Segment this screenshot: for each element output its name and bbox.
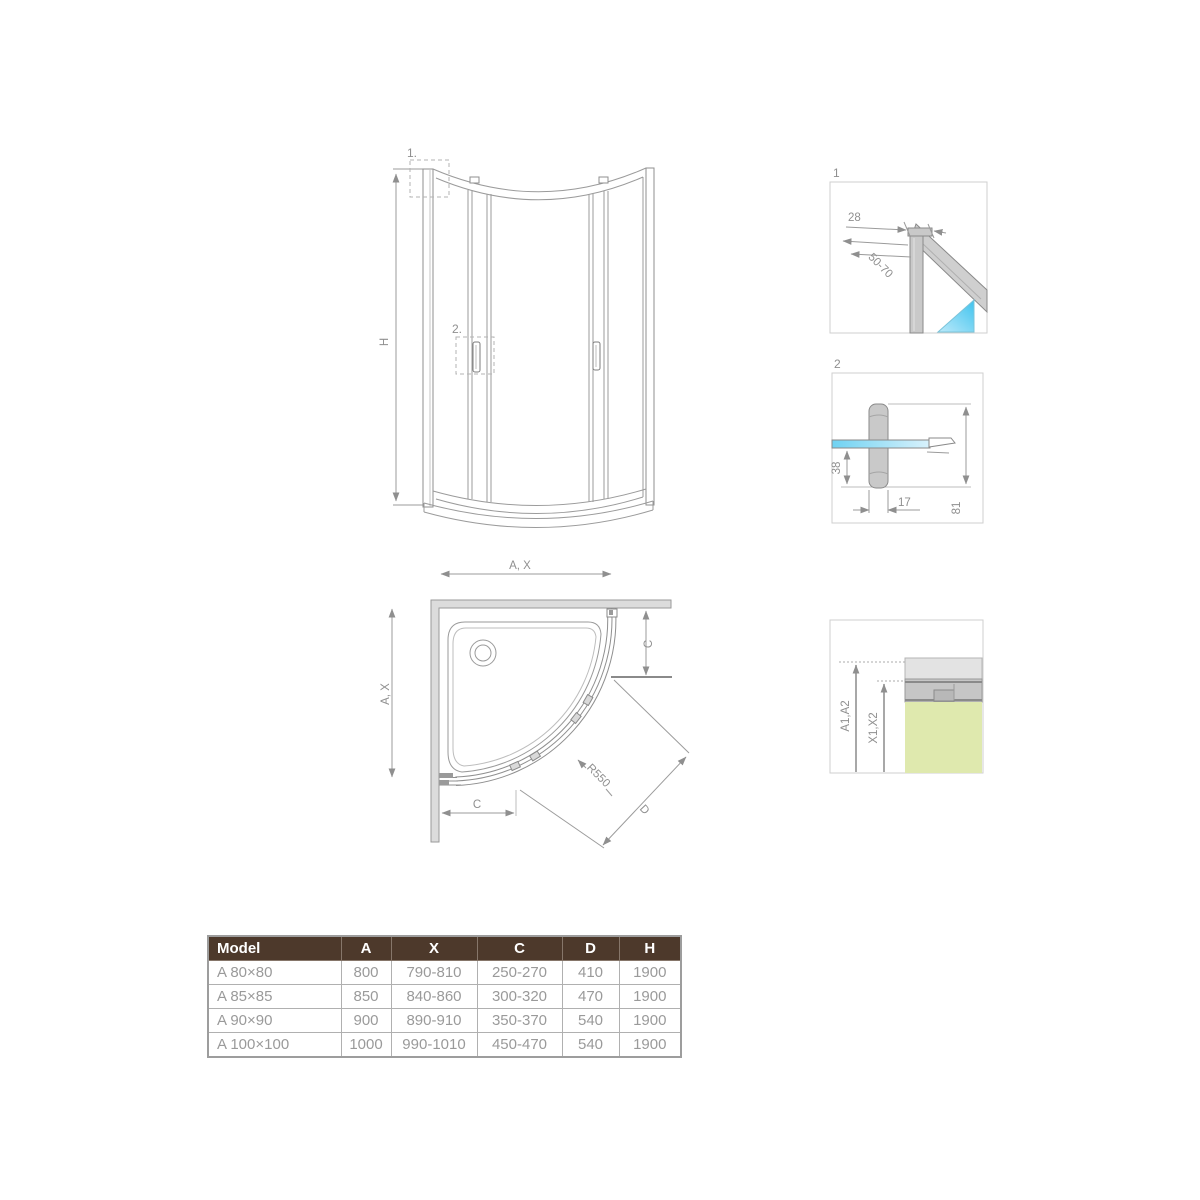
plan-radius-dim: R550: [584, 762, 612, 790]
front-elevation-view: [393, 160, 654, 528]
col-header-h: H: [619, 936, 681, 961]
plan-side-dim-bottom: C: [473, 799, 481, 811]
detail-3-inner-dim: X1,X2: [868, 712, 880, 743]
value-cell: 1000: [341, 1033, 391, 1058]
value-cell: 890-910: [391, 1009, 477, 1033]
value-cell: 450-470: [477, 1033, 562, 1058]
value-cell: 300-320: [477, 985, 562, 1009]
value-cell: 250-270: [477, 961, 562, 985]
value-cell: 850: [341, 985, 391, 1009]
glass-panel: [832, 440, 930, 448]
table-row: A 80×80 800 790-810 250-270 410 1900: [208, 961, 681, 985]
value-cell: 1900: [619, 961, 681, 985]
table-row: A 85×85 850 840-860 300-320 470 1900: [208, 985, 681, 1009]
value-cell: 1900: [619, 1033, 681, 1058]
value-cell: 410: [562, 961, 619, 985]
model-cell: A 80×80: [208, 961, 341, 985]
value-cell: 800: [341, 961, 391, 985]
value-cell: 790-810: [391, 961, 477, 985]
col-header-x: X: [391, 936, 477, 961]
col-header-d: D: [562, 936, 619, 961]
table-header-row: Model A X C D H: [208, 936, 681, 961]
dimensions-table: Model A X C D H A 80×80 800 790-810 250-…: [207, 935, 682, 1058]
table-row: A 100×100 1000 990-1010 450-470 540 1900: [208, 1033, 681, 1058]
col-header-c: C: [477, 936, 562, 961]
value-cell: 900: [341, 1009, 391, 1033]
height-dim-label: H: [379, 338, 391, 346]
roller: [571, 713, 581, 724]
plan-entry-dim: D: [637, 803, 651, 817]
model-cell: A 90×90: [208, 1009, 341, 1033]
detail-2-handle-width-dim: 17: [898, 497, 911, 509]
detail-box-3: [830, 620, 983, 773]
detail-2-handle-height-dim: 81: [951, 502, 963, 515]
value-cell: 470: [562, 985, 619, 1009]
model-cell: A 100×100: [208, 1033, 341, 1058]
detail-2-marker-label: 2.: [452, 322, 462, 336]
door-handle: [473, 342, 480, 372]
wall-section: [905, 658, 982, 679]
detail-1-index: 1: [833, 166, 840, 180]
detail-3-outer-dim: A1,A2: [840, 700, 852, 731]
detail-2-index: 2: [834, 357, 841, 371]
roller: [583, 695, 593, 706]
plan-side-dim-right: C: [643, 640, 655, 648]
col-header-a: A: [341, 936, 391, 961]
glass-section: [905, 702, 982, 773]
table-row: A 90×90 900 890-910 350-370 540 1900: [208, 1009, 681, 1033]
value-cell: 350-370: [477, 1009, 562, 1033]
detail-box-1: [830, 182, 987, 333]
value-cell: 1900: [619, 985, 681, 1009]
plan-depth-dim: A, X: [380, 683, 392, 705]
value-cell: 540: [562, 1009, 619, 1033]
value-cell: 840-860: [391, 985, 477, 1009]
roller: [510, 761, 521, 770]
col-header-model: Model: [208, 936, 341, 961]
detail-2-glass-offset-dim: 38: [831, 462, 843, 475]
value-cell: 990-1010: [391, 1033, 477, 1058]
detail-1-marker-label: 1.: [407, 146, 417, 160]
door-handle: [593, 342, 600, 370]
shower-tray: [448, 622, 601, 772]
value-cell: 1900: [619, 1009, 681, 1033]
value-cell: 540: [562, 1033, 619, 1058]
plan-width-dim: A, X: [509, 560, 531, 572]
detail-1-width-dim: 28: [848, 212, 861, 224]
wall-profile: [910, 236, 923, 333]
model-cell: A 85×85: [208, 985, 341, 1009]
